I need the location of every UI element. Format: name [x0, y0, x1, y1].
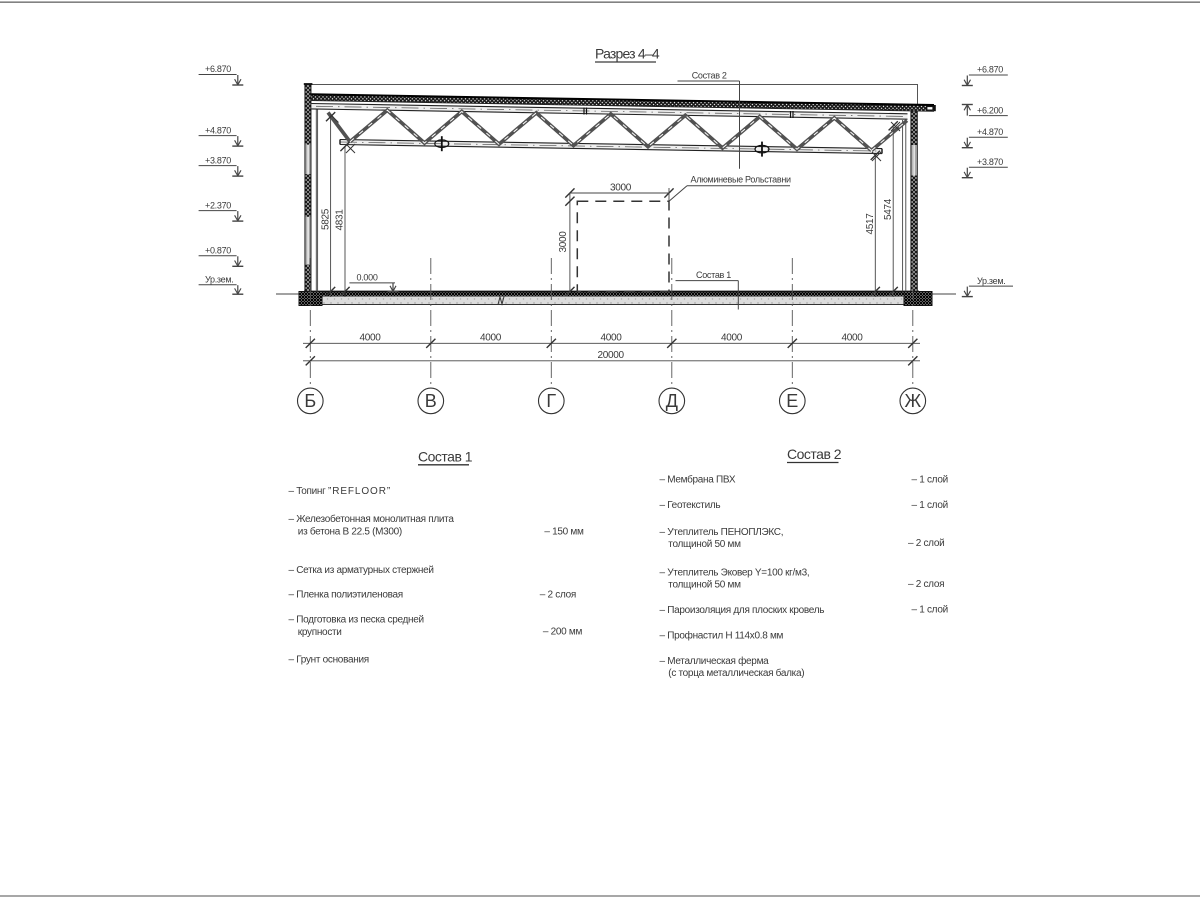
svg-text:Алюминевые Рольставни: Алюминевые Рольставни	[691, 175, 791, 185]
svg-text:+0.870: +0.870	[205, 246, 231, 256]
svg-text:– 2 слой: – 2 слой	[908, 538, 944, 549]
svg-text:Разрез 4–4: Разрез 4–4	[595, 46, 660, 62]
svg-text:Г: Г	[546, 391, 556, 411]
svg-text:+6.200: +6.200	[977, 105, 1003, 115]
svg-text:– 2 слоя: – 2 слоя	[540, 590, 576, 601]
svg-text:– Металлическая ферма: – Металлическая ферма	[660, 655, 770, 667]
svg-text:– Подготовка из песка средней: – Подготовка из песка средней	[289, 614, 424, 625]
svg-text:– Геотекстиль: – Геотекстиль	[660, 500, 721, 511]
svg-text:из бетона В 22.5 (М300): из бетона В 22.5 (М300)	[298, 525, 402, 537]
svg-text:Состав 1: Состав 1	[418, 449, 473, 465]
svg-text:Состав 1: Состав 1	[696, 270, 731, 280]
svg-text:Б: Б	[304, 391, 316, 411]
svg-text:4000: 4000	[842, 333, 864, 344]
svg-text:крупности: крупности	[298, 627, 342, 638]
svg-text:– Профнастил Н 114х0.8 мм: – Профнастил Н 114х0.8 мм	[660, 629, 784, 641]
svg-text:– Топинг ”REFLOOR”: – Топинг ”REFLOOR”	[289, 486, 392, 497]
svg-text:+3.870: +3.870	[205, 155, 231, 165]
svg-text:Ур.зем.: Ур.зем.	[205, 274, 233, 284]
svg-text:толщиной 50 мм: толщиной 50 мм	[668, 539, 741, 550]
svg-text:0.000: 0.000	[357, 273, 378, 283]
svg-text:4000: 4000	[480, 333, 502, 344]
svg-text:5825: 5825	[321, 208, 332, 230]
svg-text:4517: 4517	[865, 213, 876, 235]
svg-text:– 2 слоя: – 2 слоя	[908, 579, 944, 590]
svg-text:+2.370: +2.370	[205, 200, 231, 210]
svg-text:– 150 мм: – 150 мм	[544, 526, 584, 537]
svg-text:+4.870: +4.870	[977, 127, 1003, 137]
svg-text:4831: 4831	[335, 209, 346, 231]
svg-text:– Пленка полиэтиленовая: – Пленка полиэтиленовая	[289, 590, 403, 601]
svg-text:20000: 20000	[598, 350, 625, 361]
svg-text:+6.870: +6.870	[205, 64, 231, 74]
svg-text:3000: 3000	[610, 183, 632, 194]
svg-text:– 1 слой: – 1 слой	[912, 474, 948, 485]
svg-text:Ур.зем.: Ур.зем.	[977, 276, 1005, 286]
svg-text:Е: Е	[786, 391, 798, 411]
svg-text:+6.870: +6.870	[977, 65, 1003, 75]
svg-text:4000: 4000	[601, 333, 623, 344]
svg-text:3000: 3000	[558, 231, 569, 253]
svg-text:+4.870: +4.870	[205, 125, 231, 135]
svg-text:5474: 5474	[883, 198, 894, 220]
svg-text:В: В	[425, 391, 437, 411]
svg-text:– Железобетонная монолитная: – Железобетонная монолитная плита	[289, 513, 455, 525]
svg-text:– Утеплитель ПЕНОПЛЭКС,: – Утеплитель ПЕНОПЛЭКС,	[660, 527, 784, 538]
svg-text:+3.870: +3.870	[977, 157, 1003, 167]
svg-text:– Мембрана ПВХ: – Мембрана ПВХ	[660, 473, 736, 485]
svg-text:– 1 слой: – 1 слой	[912, 500, 948, 511]
svg-text:4000: 4000	[721, 333, 743, 344]
svg-text:(с торца металлическая балка): (с торца металлическая балка)	[668, 667, 804, 679]
svg-text:– Утеплитель Эковер Y=100 кг/: – Утеплитель Эковер Y=100 кг/м3,	[660, 567, 810, 578]
svg-text:– 200 мм: – 200 мм	[543, 627, 583, 638]
svg-text:Ж: Ж	[904, 391, 921, 411]
svg-text:– Грунт основания: – Грунт основания	[289, 654, 369, 665]
svg-text:Состав 2: Состав 2	[692, 71, 727, 81]
svg-text:– 1 слой: – 1 слой	[912, 604, 948, 615]
svg-text:4000: 4000	[360, 333, 382, 344]
svg-text:– Пароизоляция для плоских кр: – Пароизоляция для плоских кровель	[660, 605, 825, 616]
svg-text:Состав 2: Состав 2	[787, 446, 842, 462]
svg-text:толщиной 50 мм: толщиной 50 мм	[668, 579, 741, 590]
svg-text:Д: Д	[666, 391, 678, 411]
svg-text:– Сетка из арматурных стержне: – Сетка из арматурных стержней	[289, 565, 434, 576]
